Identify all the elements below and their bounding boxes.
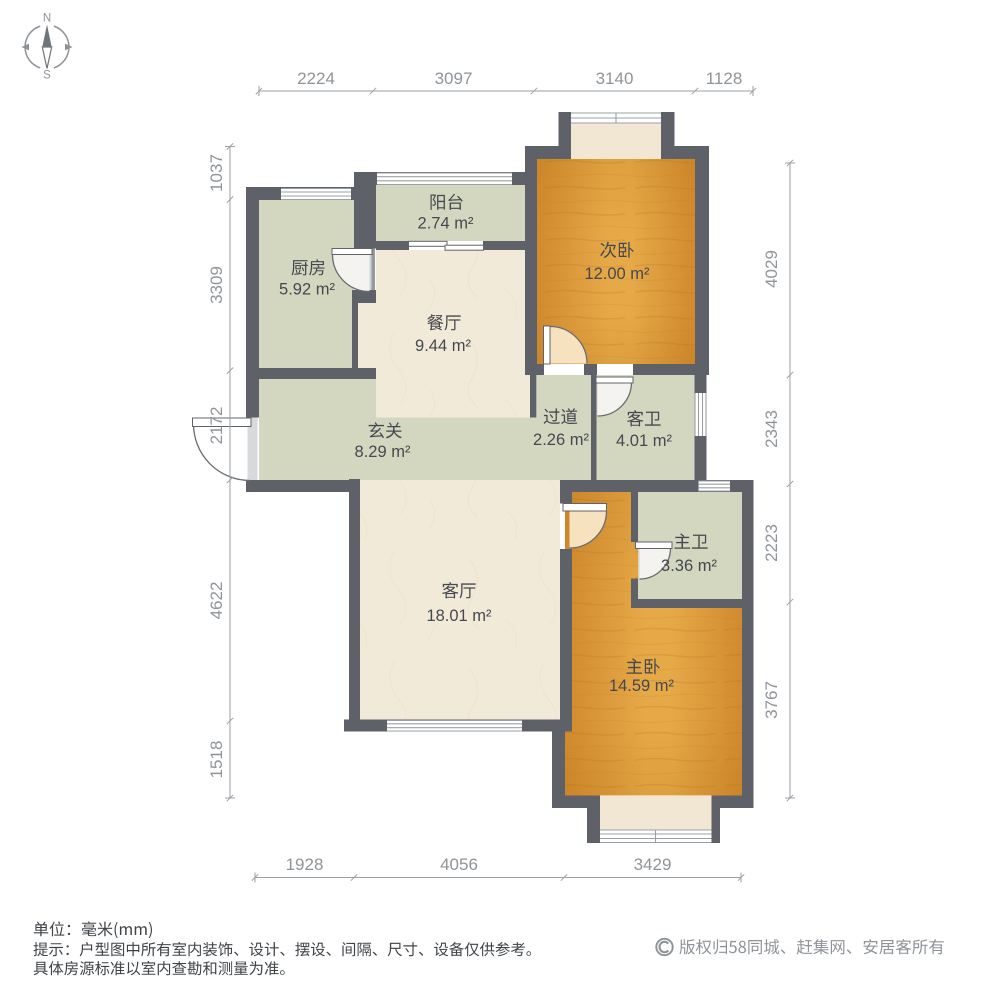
svg-text:4029: 4029 — [762, 250, 781, 288]
svg-text:5.92 m²: 5.92 m² — [279, 281, 335, 299]
svg-text:1518: 1518 — [207, 741, 226, 779]
svg-text:2343: 2343 — [762, 410, 781, 448]
svg-text:2172: 2172 — [207, 407, 226, 445]
svg-text:1128: 1128 — [706, 69, 743, 88]
svg-text:N: N — [43, 13, 51, 25]
svg-text:4056: 4056 — [440, 855, 478, 874]
svg-text:3097: 3097 — [435, 69, 473, 88]
svg-text:4.01 m²: 4.01 m² — [616, 432, 672, 450]
svg-text:14.59 m²: 14.59 m² — [609, 677, 675, 695]
svg-text:3.36 m²: 3.36 m² — [661, 557, 717, 575]
svg-text:4622: 4622 — [207, 582, 226, 620]
svg-text:12.00 m²: 12.00 m² — [584, 265, 650, 283]
svg-text:2.74 m²: 2.74 m² — [418, 215, 474, 233]
svg-text:2.26 m²: 2.26 m² — [533, 431, 589, 449]
svg-text:3309: 3309 — [207, 266, 226, 304]
svg-text:1928: 1928 — [286, 855, 324, 874]
svg-text:1037: 1037 — [207, 154, 226, 192]
svg-text:9.44 m²: 9.44 m² — [415, 337, 471, 355]
svg-text:2223: 2223 — [762, 524, 781, 562]
svg-text:S: S — [43, 70, 51, 82]
svg-text:3140: 3140 — [596, 69, 634, 88]
svg-text:3429: 3429 — [634, 855, 672, 874]
svg-text:18.01 m²: 18.01 m² — [426, 607, 492, 625]
svg-text:2224: 2224 — [297, 69, 335, 88]
svg-text:8.29 m²: 8.29 m² — [355, 443, 411, 461]
svg-text:3767: 3767 — [762, 681, 781, 719]
